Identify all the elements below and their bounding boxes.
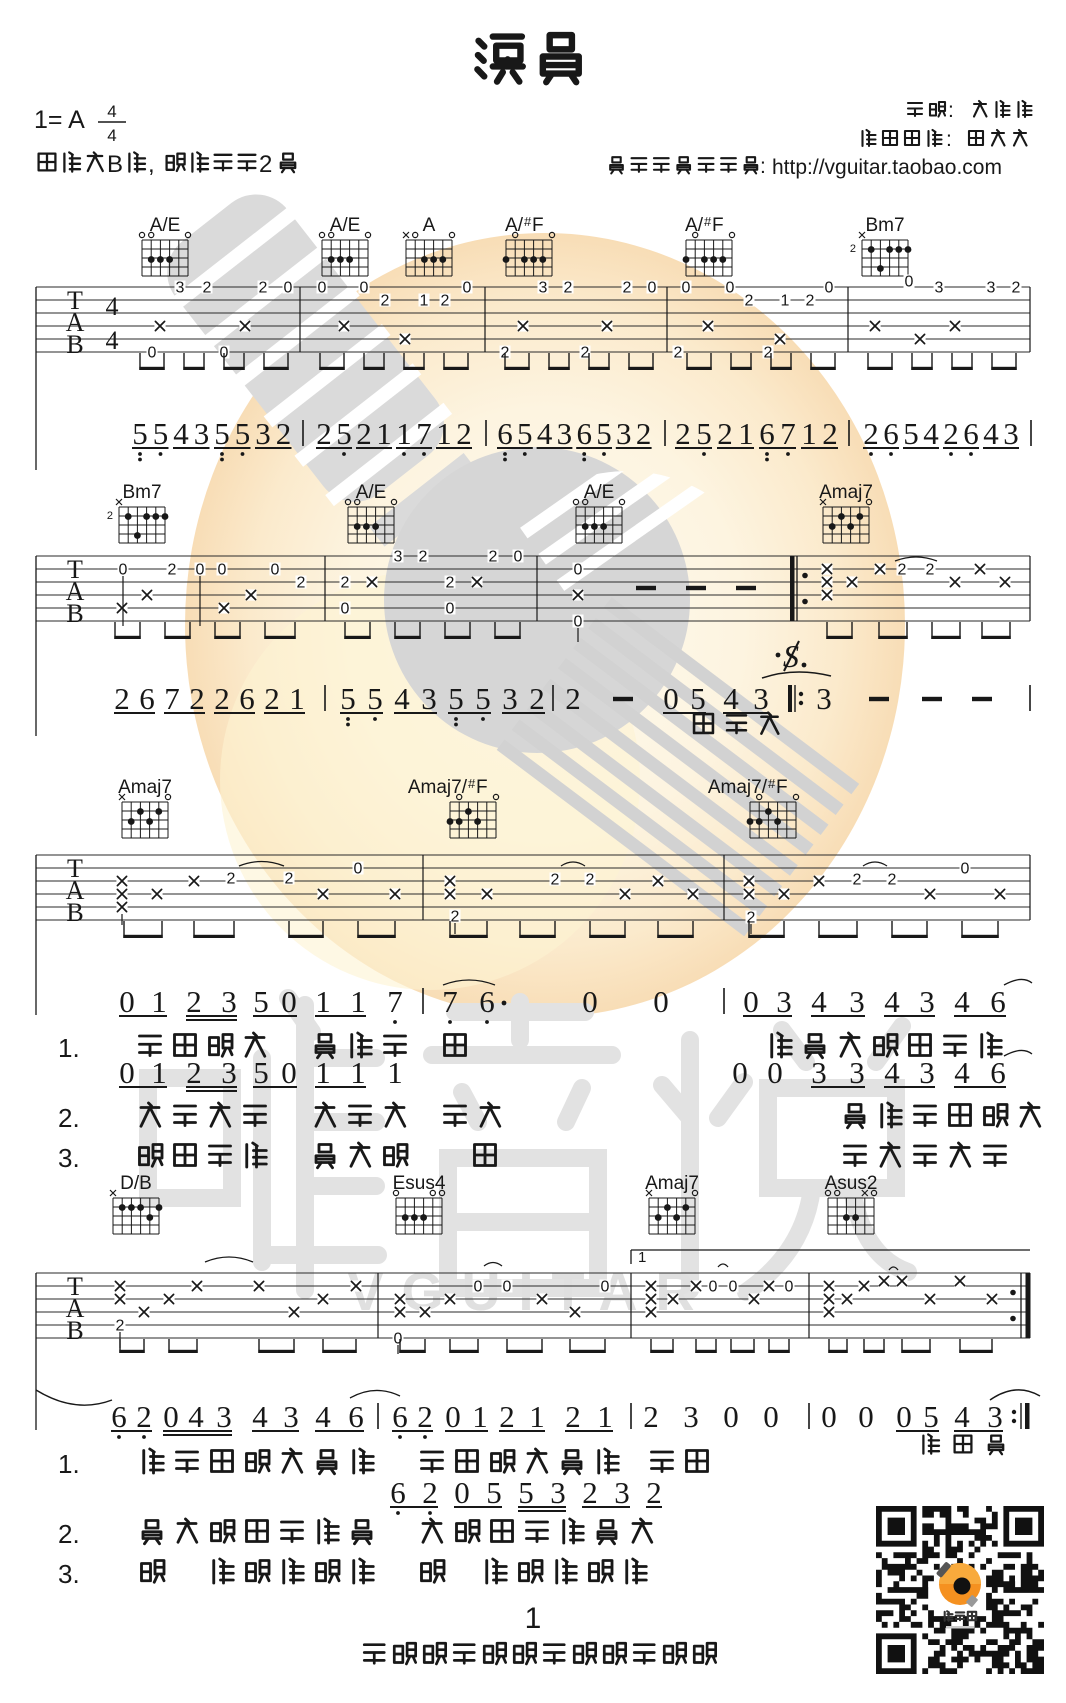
svg-text:0: 0	[767, 1055, 783, 1090]
svg-text:2: 2	[297, 575, 306, 592]
svg-text:A/E: A/E	[150, 215, 181, 236]
svg-text::: :	[946, 128, 952, 151]
svg-text:3: 3	[221, 1055, 237, 1090]
svg-text:5: 5	[486, 1475, 502, 1510]
svg-text:5: 5	[475, 681, 491, 716]
svg-text:2: 2	[806, 293, 815, 310]
svg-text:2: 2	[227, 871, 236, 888]
svg-text:4: 4	[884, 984, 900, 1019]
svg-text:0: 0	[763, 1399, 779, 1434]
svg-text:3: 3	[614, 1475, 630, 1510]
svg-text:0: 0	[663, 681, 679, 716]
svg-text:0: 0	[281, 1055, 297, 1090]
svg-text:6: 6	[576, 416, 592, 451]
svg-text:4: 4	[106, 292, 119, 321]
svg-text:2: 2	[499, 1399, 515, 1434]
svg-text:2: 2	[582, 1475, 598, 1510]
svg-text:4: 4	[188, 1399, 204, 1434]
svg-text:0: 0	[574, 614, 583, 631]
svg-text:5: 5	[517, 416, 533, 451]
svg-text:4: 4	[252, 1399, 268, 1434]
svg-text:6: 6	[479, 984, 495, 1019]
svg-text:2: 2	[264, 681, 280, 716]
svg-text:3: 3	[849, 984, 865, 1019]
svg-text:2: 2	[888, 872, 897, 889]
svg-text:2.: 2.	[58, 1519, 80, 1549]
svg-text:4: 4	[315, 1399, 331, 1434]
svg-text:2: 2	[581, 345, 590, 362]
svg-text:2: 2	[747, 910, 756, 927]
svg-text:B: B	[66, 1316, 83, 1345]
svg-text:2: 2	[926, 562, 935, 579]
svg-text:0: 0	[271, 562, 280, 579]
svg-text:3: 3	[935, 280, 944, 297]
svg-text:0: 0	[445, 1399, 461, 1434]
svg-text:6: 6	[497, 416, 513, 451]
svg-text:2: 2	[446, 575, 455, 592]
svg-text:2: 2	[863, 416, 879, 451]
svg-text:2: 2	[674, 345, 683, 362]
svg-text:2: 2	[565, 1399, 581, 1434]
svg-text:2.: 2.	[58, 1103, 80, 1133]
svg-text:0: 0	[896, 1399, 912, 1434]
svg-text:0: 0	[732, 1055, 748, 1090]
svg-text:0: 0	[961, 861, 970, 878]
svg-text:2: 2	[276, 416, 292, 451]
svg-text:4: 4	[173, 416, 189, 451]
svg-text:B: B	[66, 599, 83, 628]
svg-text:0: 0	[360, 280, 369, 297]
svg-text:7: 7	[780, 416, 796, 451]
svg-text:2: 2	[898, 562, 907, 579]
svg-text:Bm7: Bm7	[865, 215, 904, 236]
svg-text:2: 2	[259, 151, 272, 178]
svg-text:0: 0	[682, 280, 691, 297]
svg-text:0: 0	[394, 1331, 403, 1348]
svg-text:4: 4	[983, 416, 999, 451]
svg-text:1: 1	[151, 1055, 167, 1090]
svg-text:4: 4	[107, 102, 116, 121]
svg-text:#: #	[768, 776, 776, 791]
svg-text:2: 2	[356, 416, 372, 451]
svg-text:2: 2	[1012, 280, 1021, 297]
svg-text:#: #	[468, 776, 476, 791]
svg-text:6: 6	[239, 681, 255, 716]
svg-text:2: 2	[456, 416, 472, 451]
svg-text:5: 5	[923, 1399, 939, 1434]
svg-text:3: 3	[539, 280, 548, 297]
svg-text:2: 2	[675, 416, 691, 451]
svg-text:Amaj7: Amaj7	[819, 482, 873, 503]
svg-text:0: 0	[726, 280, 735, 297]
svg-text:3: 3	[811, 1055, 827, 1090]
svg-text:4: 4	[811, 984, 827, 1019]
svg-text:3: 3	[1003, 416, 1019, 451]
svg-text:0: 0	[723, 1399, 739, 1434]
svg-text:1: 1	[738, 416, 754, 451]
svg-text:3: 3	[683, 1399, 699, 1434]
svg-text:2: 2	[529, 681, 545, 716]
svg-text:2: 2	[853, 872, 862, 889]
svg-text:1: 1	[781, 293, 790, 310]
svg-text:3: 3	[849, 1055, 865, 1090]
svg-text:1: 1	[350, 1055, 366, 1090]
svg-text:5: 5	[253, 984, 269, 1019]
svg-text:3: 3	[776, 984, 792, 1019]
svg-text:7: 7	[164, 681, 180, 716]
svg-text:2: 2	[341, 575, 350, 592]
svg-text:0: 0	[474, 1279, 483, 1296]
svg-text:1: 1	[350, 984, 366, 1019]
svg-text:7: 7	[387, 984, 403, 1019]
svg-text:3: 3	[176, 280, 185, 297]
svg-text:2: 2	[441, 293, 450, 310]
svg-text:0: 0	[825, 280, 834, 297]
svg-text:2: 2	[417, 1399, 433, 1434]
svg-text:1: 1	[315, 984, 331, 1019]
svg-text:2: 2	[316, 416, 332, 451]
svg-text:4: 4	[106, 326, 119, 355]
svg-text:5: 5	[336, 416, 352, 451]
svg-text:2: 2	[745, 293, 754, 310]
svg-text:0: 0	[119, 562, 128, 579]
svg-text:6: 6	[883, 416, 899, 451]
svg-text:5: 5	[696, 416, 712, 451]
svg-text:2: 2	[214, 681, 230, 716]
svg-text:B: B	[107, 151, 123, 178]
svg-text:3: 3	[987, 1399, 1003, 1434]
svg-text:2: 2	[850, 243, 856, 255]
svg-text:1: 1	[638, 1249, 646, 1266]
svg-text:1: 1	[529, 1399, 545, 1434]
svg-text:B: B	[66, 330, 83, 359]
svg-text:3.: 3.	[58, 1559, 80, 1589]
svg-text:0: 0	[858, 1399, 874, 1434]
svg-text:3: 3	[550, 1475, 566, 1510]
svg-text:3: 3	[919, 1055, 935, 1090]
svg-text:5: 5	[340, 681, 356, 716]
svg-text:4: 4	[107, 126, 116, 145]
svg-text:A: A	[423, 215, 436, 236]
svg-text:Bm7: Bm7	[122, 482, 161, 503]
svg-text:0: 0	[341, 601, 350, 618]
svg-text:2: 2	[381, 293, 390, 310]
svg-text:1= A: 1= A	[34, 106, 85, 134]
svg-text:2: 2	[586, 872, 595, 889]
svg-text:2: 2	[451, 909, 460, 926]
svg-text:0: 0	[785, 1279, 794, 1296]
svg-text:4: 4	[723, 681, 739, 716]
svg-text:0: 0	[446, 601, 455, 618]
svg-text:#: #	[704, 214, 712, 229]
svg-text:6: 6	[759, 416, 775, 451]
svg-text:5: 5	[235, 416, 251, 451]
svg-text:3: 3	[557, 416, 573, 451]
svg-text:4: 4	[394, 681, 410, 716]
svg-text:,: ,	[148, 151, 155, 178]
svg-text:2: 2	[168, 562, 177, 579]
svg-text:1: 1	[597, 1399, 613, 1434]
svg-text:3: 3	[255, 416, 271, 451]
svg-text:F: F	[712, 215, 724, 236]
svg-text:2: 2	[489, 549, 498, 566]
svg-text:5: 5	[253, 1055, 269, 1090]
svg-text:0: 0	[574, 562, 583, 579]
svg-text:0: 0	[196, 562, 205, 579]
svg-text:2: 2	[623, 280, 632, 297]
svg-text:5: 5	[903, 416, 919, 451]
svg-text:2: 2	[116, 1318, 125, 1335]
svg-text:6: 6	[392, 1399, 408, 1434]
svg-text::: :	[760, 155, 766, 178]
svg-text:0: 0	[119, 1055, 135, 1090]
svg-text:0: 0	[354, 861, 363, 878]
svg-text:7: 7	[442, 984, 458, 1019]
svg-text:D/B: D/B	[120, 1173, 152, 1194]
svg-text:2: 2	[186, 984, 202, 1019]
svg-text:4: 4	[954, 1399, 970, 1434]
svg-text:3: 3	[919, 984, 935, 1019]
svg-text:3.: 3.	[58, 1143, 80, 1173]
svg-text:3: 3	[216, 1399, 232, 1434]
svg-text:5: 5	[153, 416, 169, 451]
svg-text:0: 0	[729, 1279, 738, 1296]
svg-text:4: 4	[884, 1055, 900, 1090]
svg-text:5: 5	[214, 416, 230, 451]
svg-text:3: 3	[987, 280, 996, 297]
svg-text:4: 4	[537, 416, 553, 451]
svg-text:0: 0	[653, 984, 669, 1019]
svg-text:2: 2	[643, 1399, 659, 1434]
svg-text:1: 1	[472, 1399, 488, 1434]
svg-text:2: 2	[203, 280, 212, 297]
svg-text:Asus2: Asus2	[825, 1173, 878, 1194]
svg-text:2: 2	[822, 416, 838, 451]
svg-text:5: 5	[367, 681, 383, 716]
svg-text:1: 1	[525, 1602, 542, 1635]
svg-text:3: 3	[221, 984, 237, 1019]
svg-text:1: 1	[289, 681, 305, 716]
svg-text:Esus4: Esus4	[393, 1173, 446, 1194]
svg-text:0: 0	[218, 562, 227, 579]
svg-text:1: 1	[315, 1055, 331, 1090]
svg-text:0: 0	[284, 280, 293, 297]
svg-text:1: 1	[376, 416, 392, 451]
svg-text:5: 5	[690, 681, 706, 716]
svg-text:0: 0	[743, 984, 759, 1019]
svg-text:6: 6	[963, 416, 979, 451]
svg-text:0: 0	[582, 984, 598, 1019]
svg-text:6: 6	[390, 1475, 406, 1510]
svg-text:1.: 1.	[58, 1033, 80, 1063]
svg-text:2: 2	[419, 549, 428, 566]
svg-text:6: 6	[139, 681, 155, 716]
svg-text:B: B	[66, 898, 83, 927]
svg-text:1: 1	[420, 293, 429, 310]
svg-text:Amaj7: Amaj7	[645, 1173, 699, 1194]
svg-text:2: 2	[564, 280, 573, 297]
svg-text:F: F	[532, 215, 544, 236]
svg-text:5: 5	[518, 1475, 534, 1510]
svg-text:6: 6	[348, 1399, 364, 1434]
svg-text:F: F	[476, 777, 488, 798]
svg-text:0: 0	[821, 1399, 837, 1434]
svg-text:0: 0	[648, 280, 657, 297]
svg-text:3: 3	[616, 416, 632, 451]
svg-text:3: 3	[283, 1399, 299, 1434]
svg-text:4: 4	[954, 1055, 970, 1090]
svg-text:2: 2	[136, 1399, 152, 1434]
svg-text:1.: 1.	[58, 1449, 80, 1479]
svg-text:2: 2	[107, 510, 113, 522]
svg-text:0: 0	[148, 345, 157, 362]
svg-text:2: 2	[646, 1475, 662, 1510]
svg-text:2: 2	[259, 280, 268, 297]
svg-text:0: 0	[709, 1279, 718, 1296]
svg-text:A/E: A/E	[330, 215, 361, 236]
svg-text:2: 2	[551, 872, 560, 889]
svg-text:2: 2	[186, 1055, 202, 1090]
svg-text:6: 6	[990, 1055, 1006, 1090]
svg-text:0: 0	[119, 984, 135, 1019]
svg-text:5: 5	[132, 416, 148, 451]
svg-text:2: 2	[636, 416, 652, 451]
svg-text:1: 1	[396, 416, 412, 451]
svg-text:Amaj7: Amaj7	[118, 777, 172, 798]
svg-text:2: 2	[114, 681, 130, 716]
svg-text:0: 0	[503, 1279, 512, 1296]
svg-text:3: 3	[502, 681, 518, 716]
svg-text:0: 0	[514, 549, 523, 566]
svg-text:6: 6	[990, 984, 1006, 1019]
svg-text:F: F	[776, 777, 788, 798]
svg-text:1: 1	[151, 984, 167, 1019]
svg-text:3: 3	[394, 549, 403, 566]
svg-text:7: 7	[416, 416, 432, 451]
svg-text:1: 1	[436, 416, 452, 451]
svg-text:0: 0	[905, 274, 914, 291]
svg-text:#: #	[524, 214, 532, 229]
svg-text:4: 4	[954, 984, 970, 1019]
svg-text:5: 5	[448, 681, 464, 716]
svg-text:0: 0	[163, 1399, 179, 1434]
svg-text:4: 4	[923, 416, 939, 451]
svg-text:0: 0	[454, 1475, 470, 1510]
svg-text:http://vguitar.taobao.com: http://vguitar.taobao.com	[772, 156, 1002, 179]
svg-text:0: 0	[318, 280, 327, 297]
svg-text:2: 2	[422, 1475, 438, 1510]
svg-text:3: 3	[753, 681, 769, 716]
svg-text:1: 1	[801, 416, 817, 451]
svg-text:2: 2	[943, 416, 959, 451]
svg-text:A/E: A/E	[356, 482, 387, 503]
svg-text:5: 5	[596, 416, 612, 451]
svg-text:1: 1	[387, 1055, 403, 1090]
svg-text:0: 0	[601, 1279, 610, 1296]
svg-text:0: 0	[281, 984, 297, 1019]
svg-text::: :	[948, 99, 954, 122]
svg-text:2: 2	[189, 681, 205, 716]
svg-text:A/E: A/E	[584, 482, 615, 503]
svg-text:6: 6	[111, 1399, 127, 1434]
svg-text:2: 2	[717, 416, 733, 451]
svg-text:2: 2	[285, 871, 294, 888]
svg-text:3: 3	[194, 416, 210, 451]
svg-text:0: 0	[463, 280, 472, 297]
svg-text:3: 3	[816, 681, 832, 716]
svg-text:3: 3	[421, 681, 437, 716]
svg-text:2: 2	[565, 681, 581, 716]
